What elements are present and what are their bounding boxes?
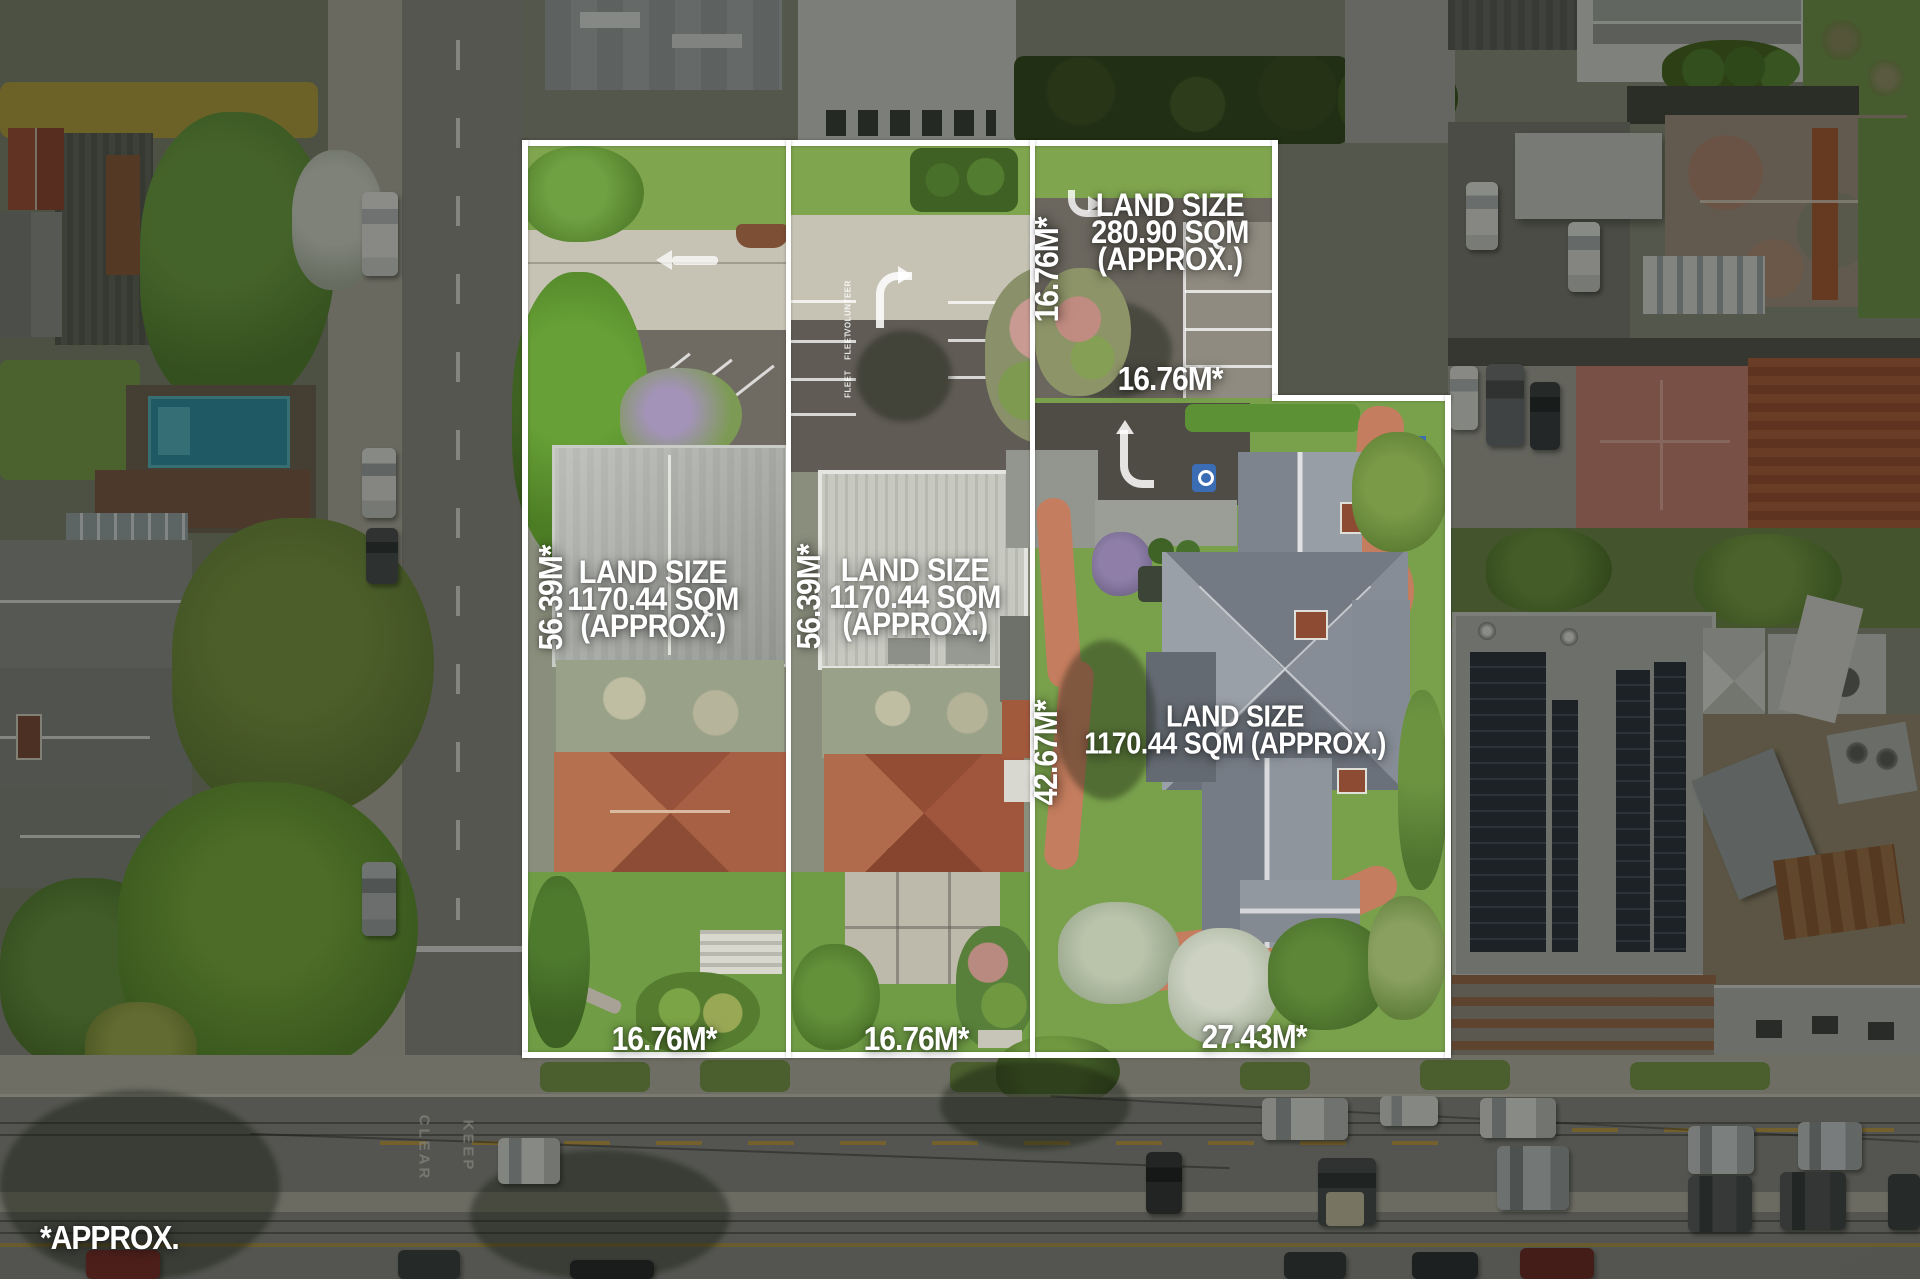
parcel-left-land-size-label: LAND SIZE 1170.44 SQM (APPROX.)	[567, 560, 739, 641]
boundary-top	[522, 140, 1278, 146]
parcel-rear-south-dimension: 16.76M*	[1118, 361, 1223, 399]
land-size-line: 1170.44 SQM (APPROX.)	[1084, 730, 1386, 757]
parcel-middle-land-size-label: LAND SIZE 1170.44 SQM (APPROX.)	[829, 558, 1001, 639]
parcel-rear-west-dimension: 16.76M*	[1029, 218, 1067, 323]
parcel-rear-land-size-label: LAND SIZE 280.90 SQM (APPROX.)	[1091, 193, 1249, 274]
parcel-right-land-size-label: LAND SIZE 1170.44 SQM (APPROX.)	[1084, 703, 1386, 757]
boundary-rear-right	[1272, 140, 1278, 401]
parcel-middle-west-dimension: 56.39M*	[791, 545, 829, 650]
parcel-middle-south-dimension: 16.76M*	[864, 1021, 969, 1059]
land-size-line: (APPROX.)	[829, 611, 1001, 638]
aerial-photo: VOLUNTEER FLEET FLEET	[0, 0, 1920, 1279]
parcel-left-south-dimension: 16.76M*	[612, 1021, 717, 1059]
boundary-right-top-segment	[1272, 395, 1451, 401]
land-size-line: (APPROX.)	[567, 613, 739, 640]
land-size-line: (APPROX.)	[1091, 246, 1249, 273]
parcel-left-west-dimension: 56.39M*	[533, 546, 571, 651]
boundary-right	[1445, 395, 1451, 1058]
boundary-left	[522, 140, 528, 1058]
parcel-right-south-dimension: 27.43M*	[1202, 1019, 1307, 1057]
approx-watermark: *APPROX.	[40, 1220, 179, 1258]
parcel-right-west-dimension: 42.67M*	[1028, 701, 1066, 806]
